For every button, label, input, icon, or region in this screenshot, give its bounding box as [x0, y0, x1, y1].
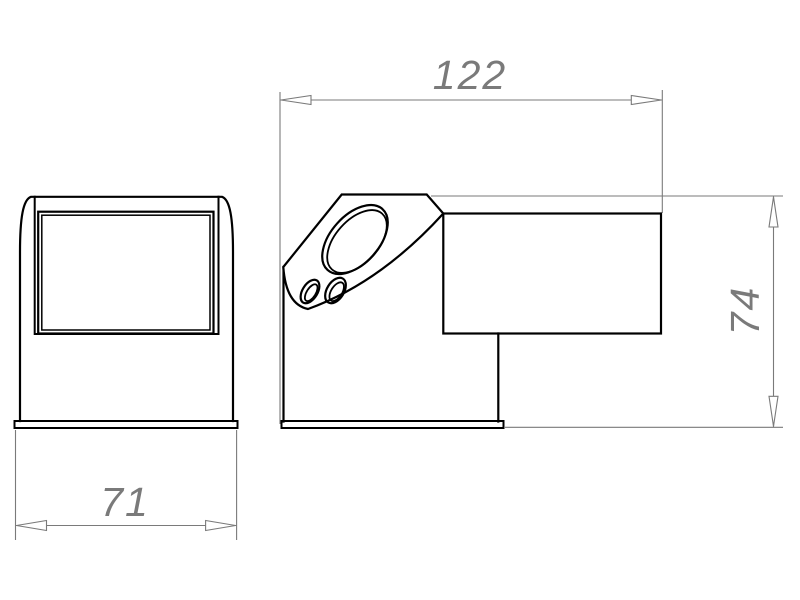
arrowhead-top — [769, 197, 778, 227]
dimension-right-height: 74 — [431, 196, 783, 427]
side-base-plate — [282, 421, 504, 428]
front-window-outer — [38, 212, 213, 334]
front-base-plate — [15, 421, 238, 428]
front-window-inner — [42, 215, 210, 330]
arrowhead-left — [17, 521, 47, 531]
dimension-bottom-width: 71 — [16, 430, 237, 540]
arrowhead-left — [281, 96, 311, 105]
technical-drawing: 122 74 71 — [0, 0, 800, 600]
side-view — [282, 193, 662, 428]
front-body-outline — [20, 197, 233, 421]
front-inner-frame — [35, 197, 219, 334]
dim-label-right-height: 74 — [722, 286, 768, 336]
arrowhead-bottom — [769, 396, 778, 426]
side-arm-box — [443, 214, 661, 334]
drawing-svg: 122 74 71 — [0, 0, 800, 600]
arrowhead-right — [206, 521, 236, 531]
dim-label-top-width: 122 — [433, 52, 507, 98]
arrowhead-right — [631, 96, 661, 105]
front-view — [15, 197, 238, 428]
dim-label-bottom-width: 71 — [100, 479, 150, 525]
